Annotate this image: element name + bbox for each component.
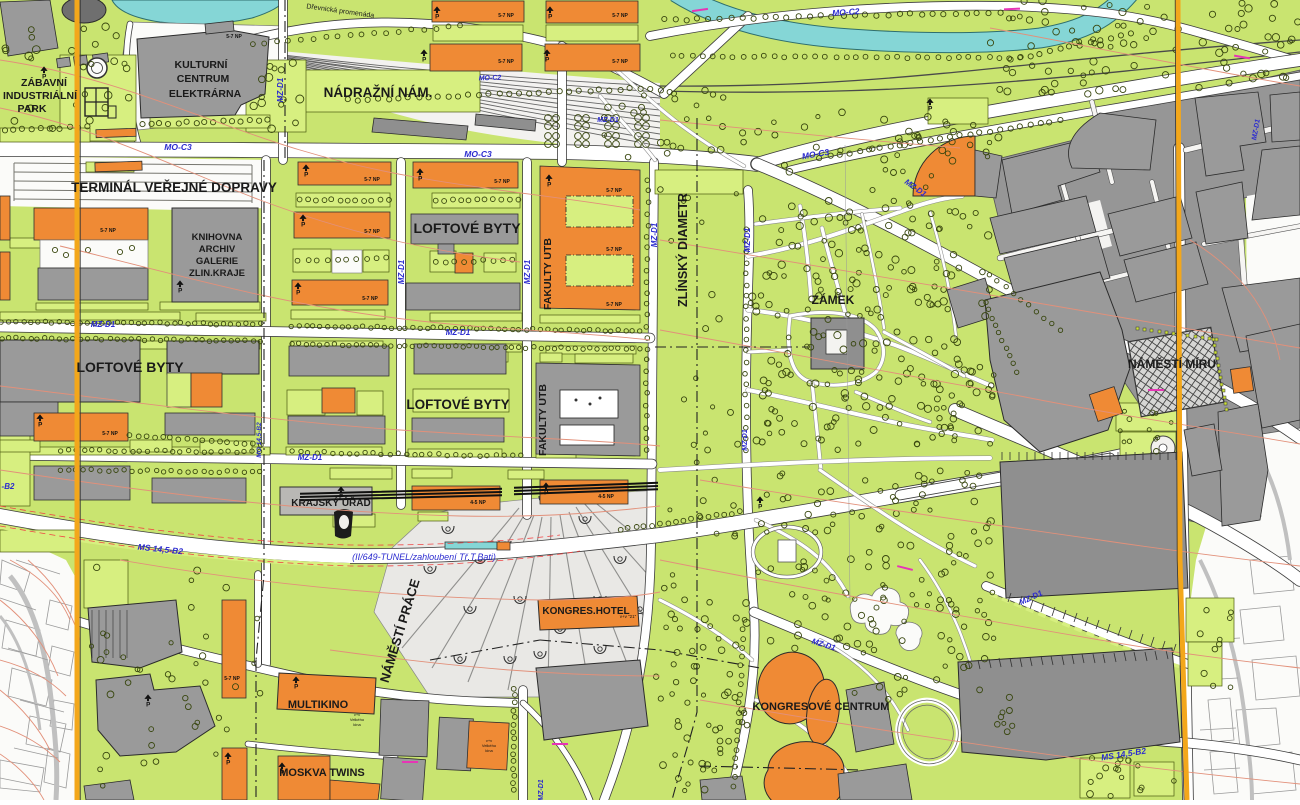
svg-text:v+v "21": v+v "21" <box>620 614 637 619</box>
svg-text:P: P <box>547 182 551 189</box>
svg-text:P: P <box>418 176 422 183</box>
svg-text:P: P <box>435 14 439 21</box>
svg-text:kina: kina <box>485 748 493 753</box>
svg-text:P: P <box>146 702 150 709</box>
svg-text:GALERIE: GALERIE <box>196 256 238 267</box>
svg-text:ZLIN.KRAJE: ZLIN.KRAJE <box>189 268 245 279</box>
svg-text:KONGRES.HOTEL: KONGRES.HOTEL <box>542 606 629 617</box>
svg-text:5-7 NP: 5-7 NP <box>226 34 242 40</box>
svg-text:MZ-D1: MZ-D1 <box>276 77 285 102</box>
svg-text:LOFTOVÉ BYTY: LOFTOVÉ BYTY <box>413 220 521 236</box>
svg-text:P: P <box>226 760 230 767</box>
svg-text:5-7 NP: 5-7 NP <box>498 13 514 19</box>
svg-text:P: P <box>42 74 46 81</box>
svg-text:5-7 NP: 5-7 NP <box>102 431 118 437</box>
svg-text:KONGRESOVÉ CENTRUM: KONGRESOVÉ CENTRUM <box>753 700 890 713</box>
svg-text:ARCHIV: ARCHIV <box>199 244 236 255</box>
svg-text:MO 14,5-B2: MO 14,5-B2 <box>256 422 263 458</box>
svg-text:KULTURNÍ: KULTURNÍ <box>175 58 229 71</box>
svg-text:MZ-D1: MZ-D1 <box>650 222 659 247</box>
svg-text:MO-C3: MO-C3 <box>164 142 192 152</box>
svg-text:NÁMĚSTÍ MÍRU: NÁMĚSTÍ MÍRU <box>1128 356 1216 371</box>
svg-text:ZÁMEK: ZÁMEK <box>812 292 855 307</box>
svg-text:MO-C3: MO-C3 <box>464 149 492 159</box>
svg-text:MZ-D1: MZ-D1 <box>446 328 471 337</box>
svg-text:P: P <box>294 684 298 691</box>
svg-text:MZ-D1: MZ-D1 <box>742 429 749 450</box>
svg-text:P: P <box>304 172 308 179</box>
svg-text:P: P <box>178 288 182 295</box>
svg-text:NÁDRAŽNÍ NÁM.: NÁDRAŽNÍ NÁM. <box>324 85 433 100</box>
svg-text:P: P <box>301 222 305 229</box>
svg-text:MZ-D1: MZ-D1 <box>597 117 618 124</box>
svg-text:MZ-D1: MZ-D1 <box>538 779 545 800</box>
svg-text:CENTRUM: CENTRUM <box>177 73 230 85</box>
svg-text:MULTIKINO: MULTIKINO <box>288 699 349 711</box>
svg-text:MZ-D1: MZ-D1 <box>397 259 406 284</box>
svg-text:5-7 NP: 5-7 NP <box>362 296 378 302</box>
svg-text:FAKULTY UTB: FAKULTY UTB <box>542 238 554 310</box>
svg-text:P: P <box>339 494 343 501</box>
svg-text:5-7 NP: 5-7 NP <box>498 59 514 65</box>
svg-text:P: P <box>296 290 300 297</box>
svg-text:MZ-D1: MZ-D1 <box>743 227 752 252</box>
svg-text:P: P <box>758 504 762 511</box>
svg-text:(II/649-TUNEL/zahloubení Tř.T.: (II/649-TUNEL/zahloubení Tř.T.Bati) <box>352 552 496 562</box>
svg-text:KNIHOVNA: KNIHOVNA <box>192 232 243 243</box>
svg-text:5-7 NP: 5-7 NP <box>612 13 628 19</box>
svg-text:5-7 NP: 5-7 NP <box>224 676 240 682</box>
svg-text:MO-C2: MO-C2 <box>832 6 860 18</box>
svg-text:KRAJSKÝ ÚŘAD: KRAJSKÝ ÚŘAD <box>291 496 370 509</box>
svg-text:MO-C2: MO-C2 <box>479 75 502 83</box>
svg-text:MOSKVA TWINS: MOSKVA TWINS <box>279 767 365 779</box>
svg-text:FAKULTY UTB: FAKULTY UTB <box>537 384 549 456</box>
svg-text:MZ-D1: MZ-D1 <box>523 259 532 284</box>
svg-text:5-7 NP: 5-7 NP <box>612 59 628 65</box>
svg-text:P: P <box>548 14 552 21</box>
svg-text:-B2: -B2 <box>2 482 15 491</box>
svg-text:ELEKTRÁRNA: ELEKTRÁRNA <box>169 87 242 100</box>
svg-text:5-7 NP: 5-7 NP <box>100 228 116 234</box>
svg-text:5-7 NP: 5-7 NP <box>364 177 380 183</box>
svg-text:MZ-D1: MZ-D1 <box>298 453 323 462</box>
svg-text:LOFTOVÉ BYTY: LOFTOVÉ BYTY <box>406 397 509 412</box>
svg-text:MZ-D1: MZ-D1 <box>91 320 116 329</box>
svg-text:ZLÍNSKÝ DIAMETR: ZLÍNSKÝ DIAMETR <box>675 193 690 307</box>
svg-text:P: P <box>38 422 42 429</box>
svg-text:INDUSTRIÁLNÍ: INDUSTRIÁLNÍ <box>3 89 78 102</box>
svg-text:LOFTOVÉ BYTY: LOFTOVÉ BYTY <box>76 359 184 375</box>
svg-text:P: P <box>280 770 284 777</box>
svg-text:P: P <box>928 106 932 113</box>
svg-text:5-7 NP: 5-7 NP <box>364 229 380 235</box>
svg-text:5-7 NP: 5-7 NP <box>606 247 622 253</box>
svg-text:P: P <box>422 57 426 64</box>
svg-text:5-7 NP: 5-7 NP <box>606 302 622 308</box>
svg-text:5-7 NP: 5-7 NP <box>494 179 510 185</box>
svg-text:TERMINÁL VEŘEJNÉ DOPRAVY: TERMINÁL VEŘEJNÉ DOPRAVY <box>71 180 277 195</box>
svg-text:P: P <box>544 490 548 497</box>
svg-text:PARK: PARK <box>18 103 47 115</box>
svg-text:4-5 NP: 4-5 NP <box>598 494 614 500</box>
svg-text:kina: kina <box>353 722 361 727</box>
svg-text:4-5 NP: 4-5 NP <box>470 500 486 506</box>
svg-text:P: P <box>545 57 549 64</box>
svg-text:5-7 NP: 5-7 NP <box>606 188 622 194</box>
